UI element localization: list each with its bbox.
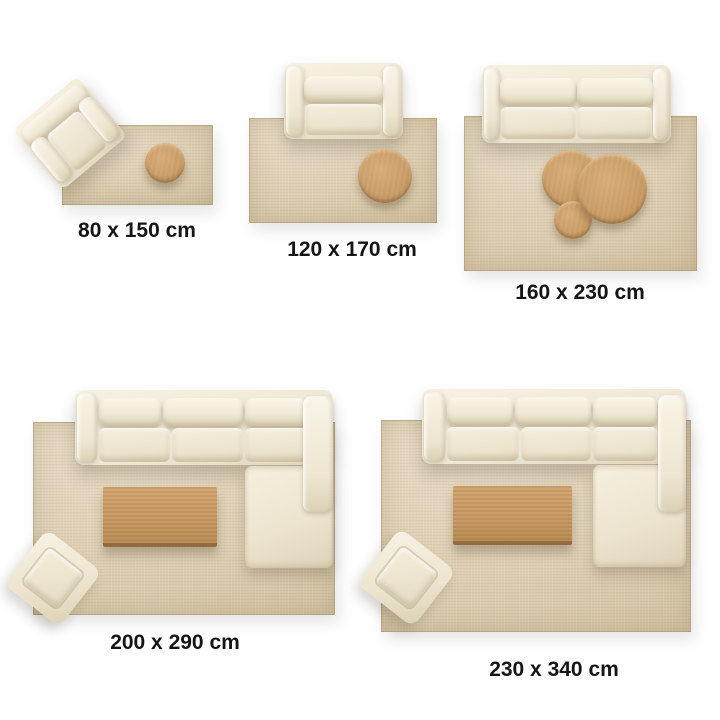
loveseat-armrest-right (383, 66, 401, 136)
sectional-back-cushion-2 (163, 398, 243, 426)
sectional-corner-seat (593, 427, 657, 461)
sectional-back-cushion-2 (515, 397, 591, 425)
nesting-table-large (577, 154, 647, 224)
sectional-armrest-left (77, 393, 97, 462)
rug-size-guide: 80 x 150 cm 120 x 170 cm 160 x 230 cm (0, 0, 720, 720)
two-seat-sofa (482, 65, 671, 143)
loveseat-seat-cushion (305, 104, 382, 135)
sofa-armrest-right (653, 68, 669, 140)
size-label-120x170: 120 x 170 cm (252, 238, 452, 262)
sectional-back-cushion-3 (593, 397, 657, 425)
sectional-back-cushion-3 (245, 398, 307, 426)
round-side-table (145, 143, 185, 183)
size-label-80x150: 80 x 150 cm (37, 219, 237, 243)
sectional-back-cushion-1 (99, 398, 161, 426)
sectional-seat-cushion-2 (172, 428, 243, 462)
sectional-corner-seat (245, 428, 308, 462)
loveseat-sofa (284, 63, 403, 139)
size-label-230x340: 230 x 340 cm (454, 658, 654, 682)
rectangular-coffee-table-large (453, 486, 572, 545)
sofa-back-cushion-left (500, 78, 576, 105)
sectional-seat-cushion-2 (521, 427, 591, 461)
loveseat-armrest-left (286, 66, 304, 136)
sectional-armrest-right (303, 396, 333, 512)
sectional-seat-cushion-1 (99, 428, 170, 462)
ottoman-cushion (22, 547, 84, 609)
sofa-back-cushion-right (577, 78, 653, 105)
sectional-back-cushion-1 (447, 397, 513, 425)
round-coffee-table (358, 149, 412, 203)
sofa-seat-cushion-left (501, 107, 576, 139)
sectional-armrest-left (424, 392, 445, 461)
sofa-armrest-left (484, 68, 500, 140)
sofa-seat-cushion-right (577, 107, 652, 139)
rectangular-coffee-table (103, 487, 217, 547)
sectional-seat-cushion-1 (447, 427, 519, 461)
size-label-160x230: 160 x 230 cm (480, 281, 680, 305)
loveseat-back-cushion (304, 76, 383, 102)
size-label-200x290: 200 x 290 cm (75, 631, 275, 655)
sectional-armrest-right (658, 395, 686, 512)
ottoman-cushion (375, 546, 438, 609)
